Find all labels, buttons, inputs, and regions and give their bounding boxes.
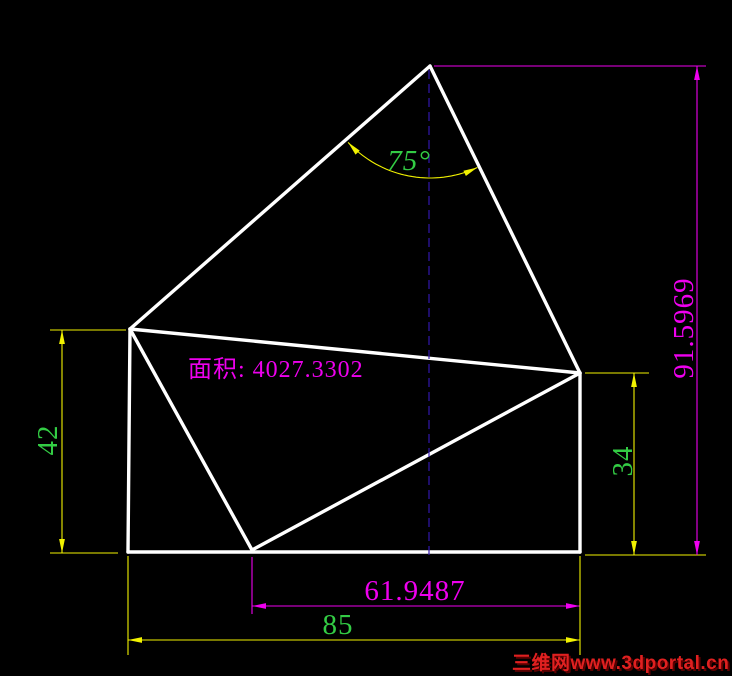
cad-drawing: 42 34 61.9487 85 91.5969 75° 面积: 4027.33…: [0, 0, 732, 676]
dimension-arrowhead: [631, 373, 637, 387]
shape-edge-left-bottom_left: [128, 329, 130, 552]
shape-edge-apex-left: [130, 66, 430, 329]
dimension-arrowhead: [252, 603, 266, 609]
dimension-arrowhead: [631, 541, 637, 555]
dimension-arrowhead: [566, 637, 580, 643]
dim-label-61-9487: 61.9487: [364, 575, 465, 607]
dimension-arrowhead: [463, 165, 478, 176]
dimension-arrowhead: [694, 541, 700, 555]
dimension-arrowhead: [59, 330, 65, 344]
dim-label-85: 85: [323, 609, 354, 641]
dim-label-91-5969: 91.5969: [668, 277, 700, 378]
dimension-arrowhead: [128, 637, 142, 643]
cad-viewport: 42 34 61.9487 85 91.5969 75° 面积: 4027.33…: [0, 0, 732, 676]
dimension-arrowhead: [59, 539, 65, 553]
area-label: 面积: 4027.3302: [188, 356, 364, 383]
dimension-arrowhead: [694, 66, 700, 80]
shape-outline: [128, 66, 580, 552]
dim-label-34: 34: [607, 446, 639, 477]
angle-label-75deg: 75°: [387, 145, 431, 177]
dim-label-42: 42: [32, 425, 64, 456]
shape-edge-bottom_mid-right: [252, 373, 580, 550]
shape-edge-apex-right: [430, 66, 580, 373]
watermark-text: 三维网www.3dportal.cn: [512, 651, 729, 674]
dimension-arrowhead: [566, 603, 580, 609]
